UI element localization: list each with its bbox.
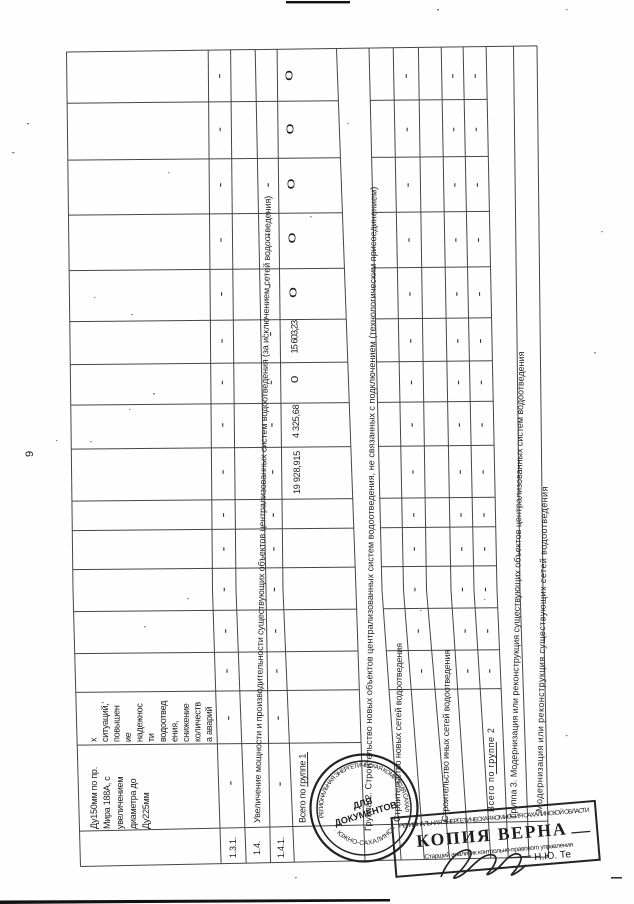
svg-text:повышен: повышен	[112, 705, 122, 742]
svg-text:диаметра до: диаметра до	[128, 778, 138, 829]
svg-text:1.4.1.: 1.4.1.	[276, 837, 286, 858]
svg-text:1.3.1.: 1.3.1.	[228, 837, 238, 858]
svg-text:снижение: снижение	[181, 703, 191, 742]
svg-text:0: 0	[290, 375, 301, 383]
svg-text:0: 0	[287, 178, 298, 190]
svg-text:4 325,68: 4 325,68	[291, 404, 301, 438]
svg-text:Всего по группе 2: Всего по группе 2	[486, 728, 496, 812]
svg-text:Ду225мм: Ду225мм	[141, 793, 151, 829]
svg-text:а аварий: а аварий	[204, 707, 214, 742]
svg-text:количеств: количеств	[192, 702, 202, 742]
svg-text:Строительство иных сетей водоо: Строительство иных сетей водоотведения	[440, 650, 452, 822]
svg-text:надежнос: надежнос	[135, 703, 145, 742]
svg-text:0: 0	[287, 232, 298, 244]
svg-text:Ду150мм по пр.: Ду150мм по пр.	[89, 767, 99, 829]
svg-text:ие: ие	[123, 732, 133, 742]
svg-text:1.4.: 1.4.	[252, 841, 262, 855]
svg-text:увеличением: увеличением	[115, 777, 125, 829]
svg-text:ения,: ения,	[169, 721, 179, 742]
svg-text:0: 0	[285, 69, 296, 81]
svg-text:9: 9	[24, 451, 36, 457]
svg-text:Мира 188А, с: Мира 188А, с	[102, 776, 112, 829]
svg-text:15 603,23: 15 603,23	[289, 320, 299, 354]
svg-text:ти: ти	[146, 733, 156, 742]
svg-text:ситуаций,: ситуаций,	[100, 703, 110, 742]
svg-text:Всего по группе 1: Всего по группе 1	[298, 754, 308, 823]
svg-text:0: 0	[288, 286, 299, 298]
svg-text:19 928,915: 19 928,915	[292, 451, 302, 494]
svg-text:водоотвед: водоотвед	[158, 700, 168, 742]
svg-text:0: 0	[286, 123, 297, 135]
